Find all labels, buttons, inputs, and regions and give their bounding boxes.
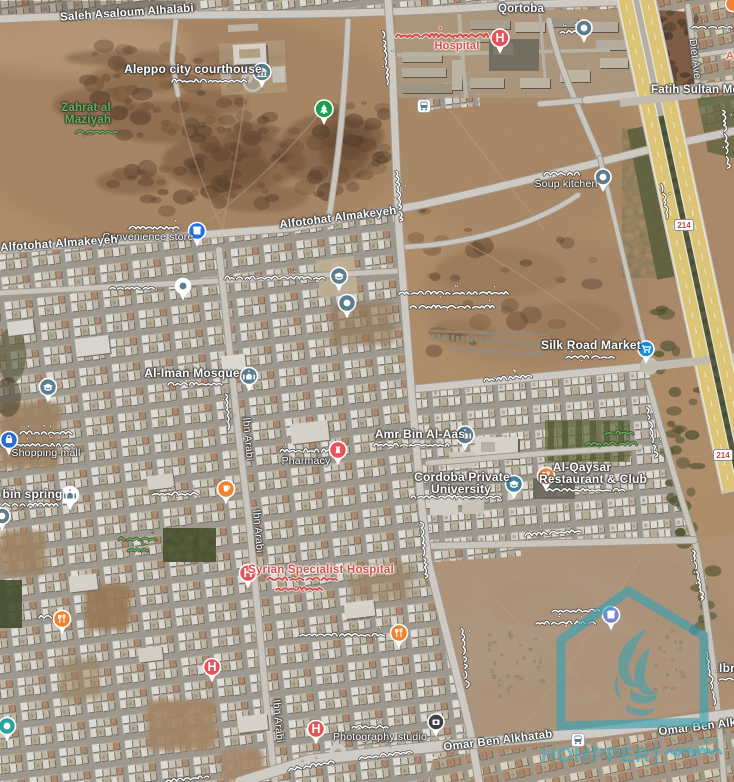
svg-text:|: |	[653, 740, 659, 765]
svg-text:HOMPPER: HOMPPER	[541, 744, 651, 767]
